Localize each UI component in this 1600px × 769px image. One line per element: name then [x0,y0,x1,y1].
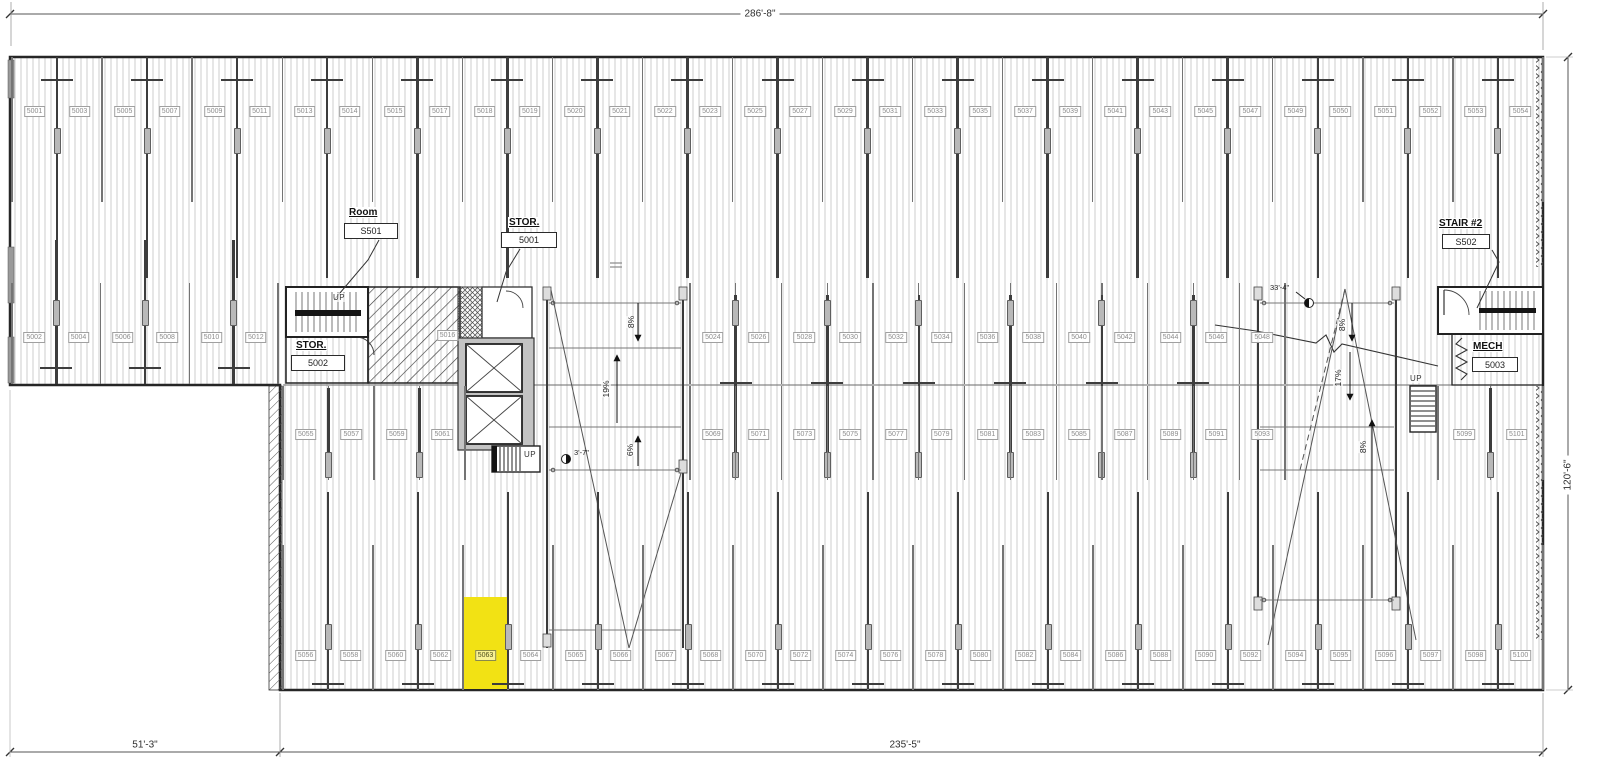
column-cross-arm [994,382,1026,385]
stall-divider [822,57,823,202]
mech-tag: 5003 [1472,357,1518,372]
spot-elevation-right: 33'-4" [1270,283,1289,292]
stall-divider [552,545,553,690]
stall-number: 5011 [249,106,270,117]
column-marker [1405,624,1412,650]
column-grid-stem [1047,492,1050,689]
stall-number: 5057 [340,429,362,440]
stall-number: 5078 [925,650,947,661]
stall-divider [1362,545,1363,690]
stall-number: 5055 [295,429,317,440]
dimension-right: 120'-6" [1563,455,1574,494]
column-marker [504,128,511,154]
stall-number: 5025 [744,106,766,117]
stall-number: 5013 [294,106,316,117]
column-marker [505,624,512,650]
column-cross-arm [582,683,614,686]
column-grid-stem [1497,492,1500,689]
stair-2-tag: S502 [1442,234,1490,249]
column-marker [1135,624,1142,650]
column-cross-arm [401,79,433,82]
stall-number: 5095 [1330,650,1352,661]
stall-divider [100,283,101,384]
stall-divider [282,386,283,480]
column-cross-arm [942,683,974,686]
left-ramp-slope-bottom: 6% [625,444,635,456]
stall-divider [732,57,733,202]
stall-number: 5007 [159,106,181,117]
stall-number: 5065 [565,650,587,661]
stall-number: 5062 [430,650,452,661]
stall-number: 5008 [156,332,178,343]
stall-divider [781,386,782,480]
stall-number: 5060 [385,650,407,661]
column-marker [1007,300,1014,326]
stall-number: 5076 [880,650,902,661]
room-s501-tag: S501 [344,223,398,239]
stall-number: 5030 [839,332,861,343]
stall-number: 5027 [789,106,811,117]
stall-number: 5084 [1060,650,1082,661]
column-marker [1045,624,1052,650]
stall-divider [735,386,736,480]
stall-divider [1092,57,1093,202]
column-cross-arm [311,79,343,82]
stall-divider [1272,57,1273,202]
column-grid-stem [1136,57,1139,278]
stall-divider [462,57,463,202]
stall-number: 5072 [790,650,812,661]
stall-divider [1272,545,1273,690]
column-marker [955,624,962,650]
stall-number: 5039 [1059,106,1081,117]
column-cross-arm [129,367,161,370]
stall-divider [1284,386,1285,480]
stall-divider [372,545,373,690]
column-cross-arm [671,79,703,82]
column-grid-stem [326,57,329,278]
stor-5001-tag: 5001 [501,232,557,248]
column-cross-arm [131,79,163,82]
stall-divider [1092,545,1093,690]
column-cross-arm [312,683,344,686]
stall-number: 5012 [245,332,267,343]
column-cross-arm [1212,79,1244,82]
stall-number: 5038 [1022,332,1044,343]
column-marker [54,128,61,154]
stall-divider [872,386,873,480]
up-label-core-stair: UP [524,450,536,459]
stall-number: 5045 [1194,106,1216,117]
stall-divider [1239,283,1240,384]
column-grid-stem [327,492,330,689]
stall-number: 5086 [1105,650,1127,661]
column-cross-arm [1482,683,1514,686]
stair-2-name: STAIR #2 [1438,218,1483,229]
stall-number: 5031 [879,106,901,117]
column-grid-stem [1317,57,1320,278]
stall-number: 5017 [429,106,451,117]
column-marker [685,624,692,650]
stall-number: 5019 [519,106,541,117]
column-cross-arm [40,367,72,370]
stall-number: 5075 [839,429,861,440]
column-grid-stem [597,492,600,689]
stall-number: 5083 [1022,429,1044,440]
parking-stalls-layer: 5001500350055007500950115013501450155017… [0,0,1600,769]
stall-divider [189,283,190,384]
stall-divider [1182,545,1183,690]
stall-divider [462,545,463,690]
column-marker [1134,128,1141,154]
column-cross-arm [41,79,73,82]
stall-number: 5046 [1206,332,1228,343]
column-cross-arm [1482,79,1514,82]
stall-divider [642,545,643,690]
stall-divider [464,386,465,480]
stall-divider [781,283,782,384]
stall-number: 5016 [437,330,459,341]
stall-number: 5101 [1506,429,1528,440]
stall-number: 5079 [931,429,953,440]
column-cross-arm [1212,683,1244,686]
stall-divider [1010,386,1011,480]
column-cross-arm [491,79,523,82]
column-marker [684,128,691,154]
stall-divider [282,57,283,202]
stall-number: 5090 [1195,650,1217,661]
stall-divider [1239,386,1240,480]
right-ramp-slope-bottom: 8% [1358,441,1368,453]
stall-divider [822,545,823,690]
stall-divider [1002,545,1003,690]
column-marker [774,128,781,154]
stall-divider [689,283,690,384]
column-grid-stem [957,492,960,689]
stall-divider [1147,386,1148,480]
dimension-top: 286'-8" [740,9,779,20]
stall-number: 5042 [1114,332,1136,343]
stall-number: 5050 [1330,106,1352,117]
stall-number: 5010 [201,332,223,343]
stall-number: 5004 [68,332,90,343]
stall-number: 5033 [924,106,946,117]
stall-divider [191,57,192,202]
stall-number: 5014 [339,106,361,117]
stall-number: 5068 [700,650,722,661]
column-marker [234,128,241,154]
column-cross-arm [720,382,752,385]
stall-divider [918,386,919,480]
stall-number: 5069 [702,429,724,440]
column-cross-arm [1302,683,1334,686]
column-grid-stem [1407,492,1410,689]
column-marker [53,300,60,326]
stall-number: 5043 [1149,106,1171,117]
mech-name: MECH [1472,341,1503,352]
stall-number: 5034 [931,332,953,343]
stall-divider [1193,386,1194,480]
stor-5001-name: STOR. [508,217,540,228]
stall-number: 5015 [384,106,406,117]
stall-divider [1182,57,1183,202]
column-cross-arm [942,79,974,82]
stall-number: 5035 [969,106,991,117]
stall-number: 5029 [834,106,856,117]
column-marker [415,624,422,650]
column-cross-arm [1392,683,1424,686]
stall-number: 5080 [970,650,992,661]
stall-number: 5028 [794,332,816,343]
stall-divider [872,283,873,384]
stall-divider [277,283,278,384]
column-marker [325,452,332,478]
stall-number: 5100 [1510,650,1532,661]
stall-number: 5093 [1251,429,1273,440]
stall-number: 5074 [835,650,857,661]
stall-divider [11,57,12,202]
column-grid-stem [687,492,690,689]
stall-number: 5091 [1206,429,1228,440]
stall-divider [1002,57,1003,202]
dimension-bottom-right: 235'-5" [885,740,924,751]
column-grid-stem [867,492,870,689]
stall-divider [1542,545,1543,690]
stall-number: 5005 [114,106,136,117]
stall-number: 5099 [1453,429,1475,440]
stall-divider [1452,545,1453,690]
stor-5002-tag: 5002 [291,355,345,371]
stall-divider [373,386,374,480]
stall-divider [642,57,643,202]
stall-number: 5063 [475,650,497,661]
column-grid-stem [776,57,779,278]
column-grid-stem [1226,57,1229,278]
stall-number: 5053 [1465,106,1487,117]
stall-number: 5089 [1160,429,1182,440]
column-grid-stem [1317,492,1320,689]
stall-number: 5088 [1150,650,1172,661]
stall-divider [11,283,12,384]
stall-number: 5059 [386,429,408,440]
stall-divider [912,57,913,202]
column-marker [1315,624,1322,650]
column-cross-arm [1392,79,1424,82]
stall-number: 5064 [520,650,542,661]
stall-number: 5001 [24,106,46,117]
stall-divider [1147,283,1148,384]
stall-number: 5003 [69,106,91,117]
stall-number: 5022 [654,106,676,117]
column-cross-arm [1122,79,1154,82]
stall-divider [1542,57,1543,202]
column-marker [325,624,332,650]
stall-number: 5024 [702,332,724,343]
stall-number: 5047 [1240,106,1262,117]
column-marker [1495,624,1502,650]
column-cross-arm [811,382,843,385]
stall-number: 5094 [1285,650,1307,661]
column-marker [1224,128,1231,154]
column-cross-arm [762,79,794,82]
stall-number: 5054 [1510,106,1532,117]
stall-number: 5082 [1015,650,1037,661]
column-marker [142,300,149,326]
stall-divider [964,386,965,480]
stall-divider [1101,386,1102,480]
up-label-mech-stair: UP [1410,374,1422,383]
column-cross-arm [492,683,524,686]
column-marker [324,128,331,154]
stall-divider [912,545,913,690]
stall-divider [101,57,102,202]
stall-number: 5096 [1375,650,1397,661]
stall-divider [689,386,690,480]
stall-number: 5041 [1104,106,1126,117]
column-marker [595,624,602,650]
column-grid-stem [1407,57,1410,278]
stall-divider [372,57,373,202]
column-marker [864,128,871,154]
column-cross-arm [1032,79,1064,82]
stall-number: 5037 [1014,106,1036,117]
stall-divider [1452,57,1453,202]
column-grid-stem [956,57,959,278]
room-s501-name: Room [348,207,378,218]
column-grid-stem [417,492,420,689]
stall-divider [1284,283,1285,384]
column-cross-arm [852,683,884,686]
stall-number: 5036 [977,332,999,343]
stall-number: 5066 [610,650,632,661]
stall-number: 5056 [295,650,317,661]
stall-divider [1056,283,1057,384]
column-grid-stem [507,492,510,689]
stall-number: 5092 [1240,650,1262,661]
column-marker [865,624,872,650]
column-grid-stem [1046,57,1049,278]
column-cross-arm [1032,683,1064,686]
stall-number: 5061 [431,429,453,440]
stall-divider [282,545,283,690]
stall-divider [1437,386,1438,480]
column-marker [775,624,782,650]
stall-number: 5023 [699,106,721,117]
stall-number: 5098 [1465,650,1487,661]
stall-number: 5018 [474,106,496,117]
column-marker [1190,300,1197,326]
column-marker [1098,300,1105,326]
stall-divider [732,545,733,690]
column-marker [732,300,739,326]
stall-divider [827,386,828,480]
floor-plan-canvas: 5001500350055007500950115013501450155017… [0,0,1600,769]
column-marker [1487,452,1494,478]
column-cross-arm [1302,79,1334,82]
column-cross-arm [1086,382,1118,385]
stall-number: 5048 [1251,332,1273,343]
stall-divider [1542,386,1543,480]
column-marker [230,300,237,326]
stall-number: 5071 [748,429,770,440]
column-cross-arm [762,683,794,686]
column-grid-stem [866,57,869,278]
stall-number: 5044 [1160,332,1182,343]
column-cross-arm [402,683,434,686]
stor-5002-name: STOR. [295,340,327,351]
column-grid-stem [1137,492,1140,689]
column-cross-arm [1177,382,1209,385]
stall-number: 5049 [1285,106,1307,117]
column-grid-stem [236,57,239,278]
stall-number: 5085 [1068,429,1090,440]
stall-number: 5032 [885,332,907,343]
left-ramp-slope-top: 8% [626,316,636,328]
stall-divider [1056,386,1057,480]
stall-number: 5020 [564,106,586,117]
column-marker [1225,624,1232,650]
stall-number: 5087 [1114,429,1136,440]
column-marker [1314,128,1321,154]
column-grid-stem [777,492,780,689]
column-grid-stem [1497,57,1500,278]
column-marker [594,128,601,154]
stall-divider [1362,57,1363,202]
column-marker [915,300,922,326]
column-grid-stem [416,57,419,278]
dimension-bottom-left: 51'-3" [128,740,161,751]
stall-number: 5077 [885,429,907,440]
right-ramp-slope-top: 8% [1337,319,1347,331]
column-grid-stem [1227,492,1230,689]
highlighted-stall [463,597,508,689]
stall-number: 5040 [1068,332,1090,343]
column-cross-arm [903,382,935,385]
stall-number: 5021 [609,106,631,117]
column-cross-arm [672,683,704,686]
stall-divider [964,283,965,384]
column-marker [1494,128,1501,154]
column-cross-arm [218,367,250,370]
column-cross-arm [1122,683,1154,686]
column-marker [1044,128,1051,154]
column-marker [416,452,423,478]
stall-number: 5070 [745,650,767,661]
stall-number: 5052 [1420,106,1442,117]
right-ramp-slope-mid: 17% [1333,369,1343,386]
column-marker [954,128,961,154]
stall-number: 5051 [1375,106,1397,117]
spot-elevation-left: 3'-7" [574,448,589,457]
column-marker [1404,128,1411,154]
column-cross-arm [221,79,253,82]
stall-number: 5009 [204,106,226,117]
stall-number: 5081 [977,429,999,440]
column-marker [414,128,421,154]
column-marker [824,300,831,326]
column-grid-stem [596,57,599,278]
up-label-stair-s501: UP [333,293,345,302]
stall-number: 5026 [748,332,770,343]
column-cross-arm [581,79,613,82]
stall-number: 5058 [340,650,362,661]
column-marker [144,128,151,154]
stall-number: 5067 [655,650,677,661]
stall-number: 5002 [23,332,45,343]
column-grid-stem [686,57,689,278]
column-cross-arm [852,79,884,82]
stall-number: 5006 [112,332,134,343]
